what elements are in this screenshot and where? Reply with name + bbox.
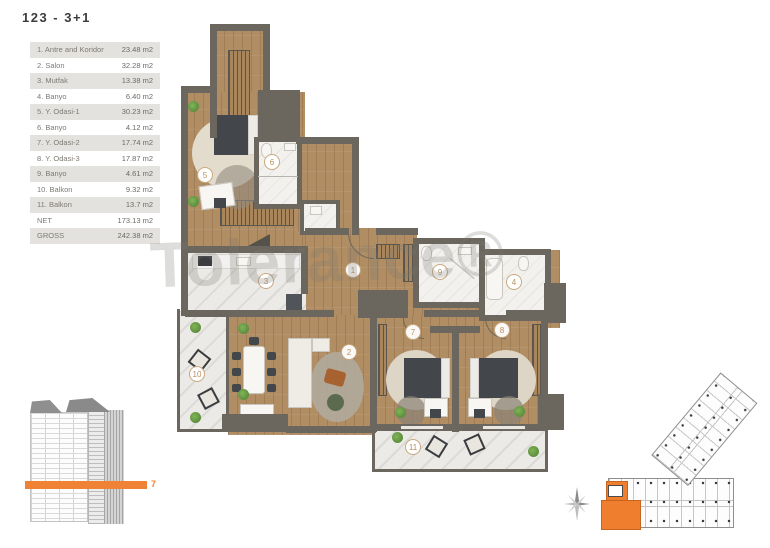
- chair: [232, 368, 241, 376]
- room-label: 8. Y. Odasi-3: [37, 155, 80, 163]
- wall-segment: [376, 310, 402, 317]
- room-label: 2. Salon: [37, 62, 65, 70]
- toilet: [518, 256, 529, 271]
- sliding-door: [400, 425, 444, 430]
- plant: [190, 412, 201, 423]
- chair: [430, 409, 441, 418]
- chair: [214, 198, 226, 208]
- room-badge-3: 3: [258, 273, 274, 289]
- parapet: [372, 469, 548, 472]
- wall-segment: [424, 310, 484, 317]
- room-area: 9.32 m2: [126, 186, 153, 194]
- room-badge-10: 10: [189, 366, 205, 382]
- wall-segment: [286, 426, 376, 433]
- table-row: 3. Mutfak13.38 m2: [30, 73, 160, 89]
- wall-segment: [452, 332, 459, 432]
- shower-glass: [258, 176, 298, 177]
- room-badge-6: 6: [264, 154, 280, 170]
- wall-segment: [370, 310, 377, 432]
- highlighted-floor-band: [25, 481, 147, 489]
- sliding-door: [482, 425, 526, 430]
- wall-segment: [210, 24, 270, 31]
- room-area: 23.48 m2: [122, 46, 153, 54]
- room-badge-9: 9: [432, 264, 448, 280]
- chair: [267, 368, 276, 376]
- wall-segment: [301, 252, 308, 294]
- wall-segment: [210, 24, 217, 138]
- elevation-roof-right: [66, 398, 110, 412]
- wall-segment: [181, 86, 188, 316]
- table-row: 8. Y. Odasi-317.87 m2: [30, 151, 160, 167]
- area-rug: [310, 352, 364, 422]
- floor-number-label: 7: [151, 479, 156, 489]
- window-line: [226, 316, 229, 432]
- plant: [238, 323, 249, 334]
- wall-segment: [228, 310, 334, 317]
- table-row: 6. Banyo4.12 m2: [30, 120, 160, 136]
- table-row: 2. Salon32.28 m2: [30, 58, 160, 74]
- cooktop: [198, 256, 212, 266]
- bed: [214, 115, 252, 155]
- bed: [404, 358, 444, 398]
- washer: [310, 206, 322, 215]
- wall-block: [222, 414, 288, 432]
- room-label: 6. Banyo: [37, 124, 67, 132]
- room-badge-8: 8: [494, 322, 510, 338]
- plant: [188, 196, 199, 207]
- wall-segment: [506, 310, 548, 317]
- chair: [267, 352, 276, 360]
- plant: [190, 322, 201, 333]
- table-row: 5. Y. Odasi-130.23 m2: [30, 104, 160, 120]
- room-label: 4. Banyo: [37, 93, 67, 101]
- room-badge-11: 11: [405, 439, 421, 455]
- sofa: [288, 338, 312, 408]
- chair: [474, 409, 485, 418]
- sink: [458, 247, 472, 255]
- room-label: 3. Mutfak: [37, 77, 68, 85]
- plant: [528, 446, 539, 457]
- table-row: 7. Y. Odasi-217.74 m2: [30, 135, 160, 151]
- chaise: [312, 338, 330, 352]
- wall-segment: [296, 137, 356, 144]
- bed-pillows: [470, 358, 479, 398]
- parapet: [545, 428, 548, 472]
- plant: [238, 389, 249, 400]
- room-area: 13.38 m2: [122, 77, 153, 85]
- room-label: 11. Balkon: [37, 201, 72, 209]
- room-label: 7. Y. Odasi-2: [37, 139, 80, 147]
- shoe-cabinet: [376, 244, 400, 259]
- room-area: 242.38 m2: [118, 232, 153, 240]
- wall-segment: [305, 228, 349, 235]
- table-row: 1. Antre and Koridor23.48 m2: [30, 42, 160, 58]
- bed: [478, 358, 518, 398]
- room-badge-2: 2: [341, 344, 357, 360]
- wall-segment: [263, 24, 270, 96]
- chair: [232, 352, 241, 360]
- room-area: 6.40 m2: [126, 93, 153, 101]
- bed-pillows: [441, 358, 450, 398]
- highlighted-unit-lower: [601, 500, 641, 530]
- room-label: 10. Balkon: [37, 186, 72, 194]
- keyplan-stair-core: [608, 485, 623, 497]
- room-badge-5: 5: [197, 167, 213, 183]
- shaft-block: [258, 90, 300, 140]
- room-label: GROSS: [37, 232, 64, 240]
- room-label: 5. Y. Odasi-1: [37, 108, 80, 116]
- chair: [249, 337, 259, 345]
- elevation-tower-left: [30, 412, 88, 522]
- area-table: 1. Antre and Koridor23.48 m2 2. Salon32.…: [30, 42, 160, 244]
- keyplan-wing-diagonal: [651, 372, 757, 486]
- wall-segment: [352, 137, 359, 235]
- plant: [188, 101, 199, 112]
- plant: [395, 407, 406, 418]
- chair: [267, 384, 276, 392]
- room-badge-1: 1: [345, 262, 361, 278]
- closet: [403, 244, 413, 282]
- table-row: 4. Banyo6.40 m2: [30, 89, 160, 105]
- plant: [392, 432, 403, 443]
- table-row: 11. Balkon13.7 m2: [30, 197, 160, 213]
- table-row: 10. Balkon9.32 m2: [30, 182, 160, 198]
- room-area: 4.61 m2: [126, 170, 153, 178]
- room-area: 4.12 m2: [126, 124, 153, 132]
- room-area: 32.28 m2: [122, 62, 153, 70]
- dining-table: [243, 346, 265, 394]
- compass-icon: [562, 486, 592, 522]
- page: 123 - 3+1 1. Antre and Koridor23.48 m2 2…: [0, 0, 770, 548]
- room-area: 173.13 m2: [118, 217, 153, 225]
- room-label: 1. Antre and Koridor: [37, 46, 104, 54]
- room-area: 17.74 m2: [122, 139, 153, 147]
- wall-segment: [376, 228, 418, 235]
- room-area: 13.7 m2: [126, 201, 153, 209]
- pouf: [327, 394, 344, 411]
- parapet: [372, 428, 375, 472]
- room-badge-4: 4: [506, 274, 522, 290]
- elevation-roof-left: [30, 400, 62, 413]
- elevation-core-strip: [104, 410, 124, 524]
- parapet: [177, 309, 180, 432]
- parapet: [177, 429, 229, 432]
- column: [538, 394, 564, 430]
- sink: [284, 143, 296, 151]
- table-row-gross: GROSS242.38 m2: [30, 228, 160, 244]
- toilet: [421, 246, 432, 261]
- column: [544, 283, 566, 323]
- wall-segment: [430, 326, 480, 333]
- room-label: 9. Banyo: [37, 170, 67, 178]
- room-area: 17.87 m2: [122, 155, 153, 163]
- room-area: 30.23 m2: [122, 108, 153, 116]
- wall-segment: [185, 246, 308, 253]
- table-row: 9. Banyo4.61 m2: [30, 166, 160, 182]
- room-label: NET: [37, 217, 52, 225]
- kitchen-sink: [236, 257, 251, 266]
- room-badge-7: 7: [405, 324, 421, 340]
- bathtub: [486, 258, 503, 300]
- unit-title: 123 - 3+1: [22, 10, 91, 25]
- plant: [514, 406, 525, 417]
- table-row-net: NET173.13 m2: [30, 213, 160, 229]
